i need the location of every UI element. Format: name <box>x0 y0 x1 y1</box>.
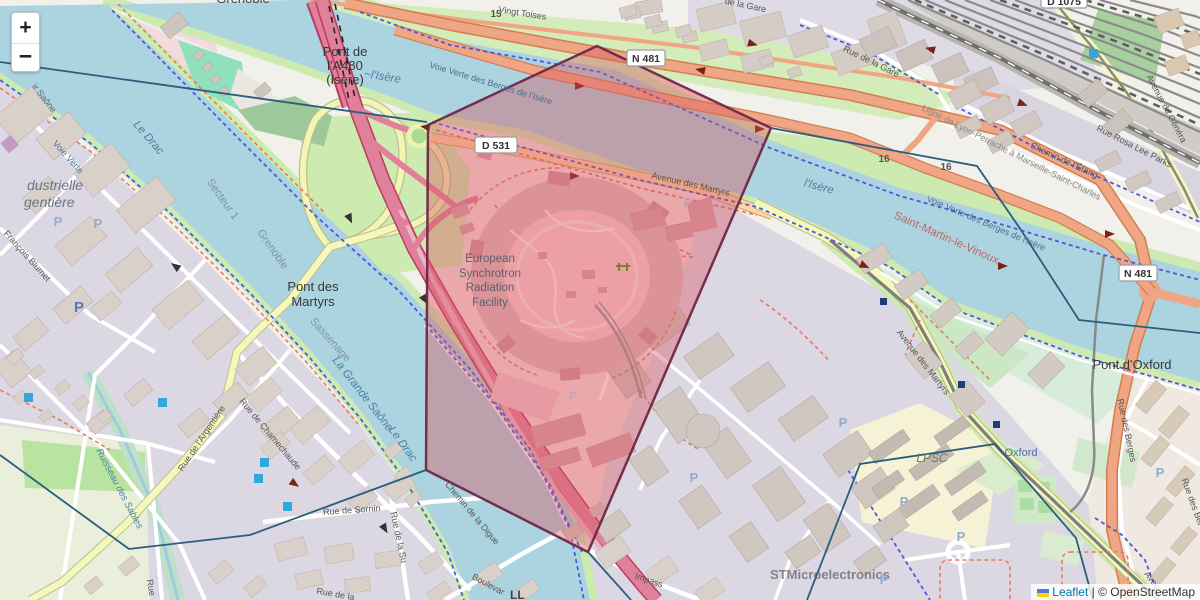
svg-text:l'A480: l'A480 <box>327 58 363 73</box>
svg-text:P: P <box>839 415 848 430</box>
svg-text:LL: LL <box>510 588 525 600</box>
svg-text:Martyrs: Martyrs <box>291 294 335 309</box>
svg-text:D 531: D 531 <box>482 140 510 152</box>
svg-text:Pont de: Pont de <box>323 44 368 59</box>
svg-text:Radiation: Radiation <box>466 282 515 294</box>
svg-text:Pont des: Pont des <box>287 279 339 294</box>
svg-text:P: P <box>684 195 693 210</box>
svg-text:N 481: N 481 <box>1124 268 1152 280</box>
svg-text:dustrielle: dustrielle <box>27 177 83 193</box>
svg-text:Grenoble: Grenoble <box>216 0 269 6</box>
svg-text:P: P <box>1156 465 1165 480</box>
svg-text:15: 15 <box>490 9 502 20</box>
svg-text:16: 16 <box>940 162 952 173</box>
svg-text:Pont d'Oxford: Pont d'Oxford <box>1092 357 1171 372</box>
svg-text:P: P <box>690 470 699 485</box>
svg-text:P: P <box>569 389 578 404</box>
svg-text:P: P <box>74 299 84 316</box>
svg-text:Facility: Facility <box>472 297 508 309</box>
svg-text:P: P <box>54 214 63 229</box>
svg-text:P: P <box>880 572 889 587</box>
svg-text:LPSC: LPSC <box>916 451 948 465</box>
svg-text:gentière: gentière <box>24 194 75 210</box>
svg-text:16: 16 <box>878 154 890 165</box>
svg-text:D 1075: D 1075 <box>1047 0 1081 8</box>
svg-text:European: European <box>465 253 515 265</box>
svg-text:P: P <box>957 529 966 544</box>
svg-text:P: P <box>94 216 103 231</box>
svg-text:(Isère): (Isère) <box>326 72 364 87</box>
svg-text:STMicroelectronics: STMicroelectronics <box>770 567 890 582</box>
svg-text:Oxford: Oxford <box>1004 447 1037 459</box>
svg-text:N 481: N 481 <box>632 53 660 65</box>
svg-text:Synchrotron: Synchrotron <box>459 268 521 280</box>
svg-text:P: P <box>900 494 909 509</box>
